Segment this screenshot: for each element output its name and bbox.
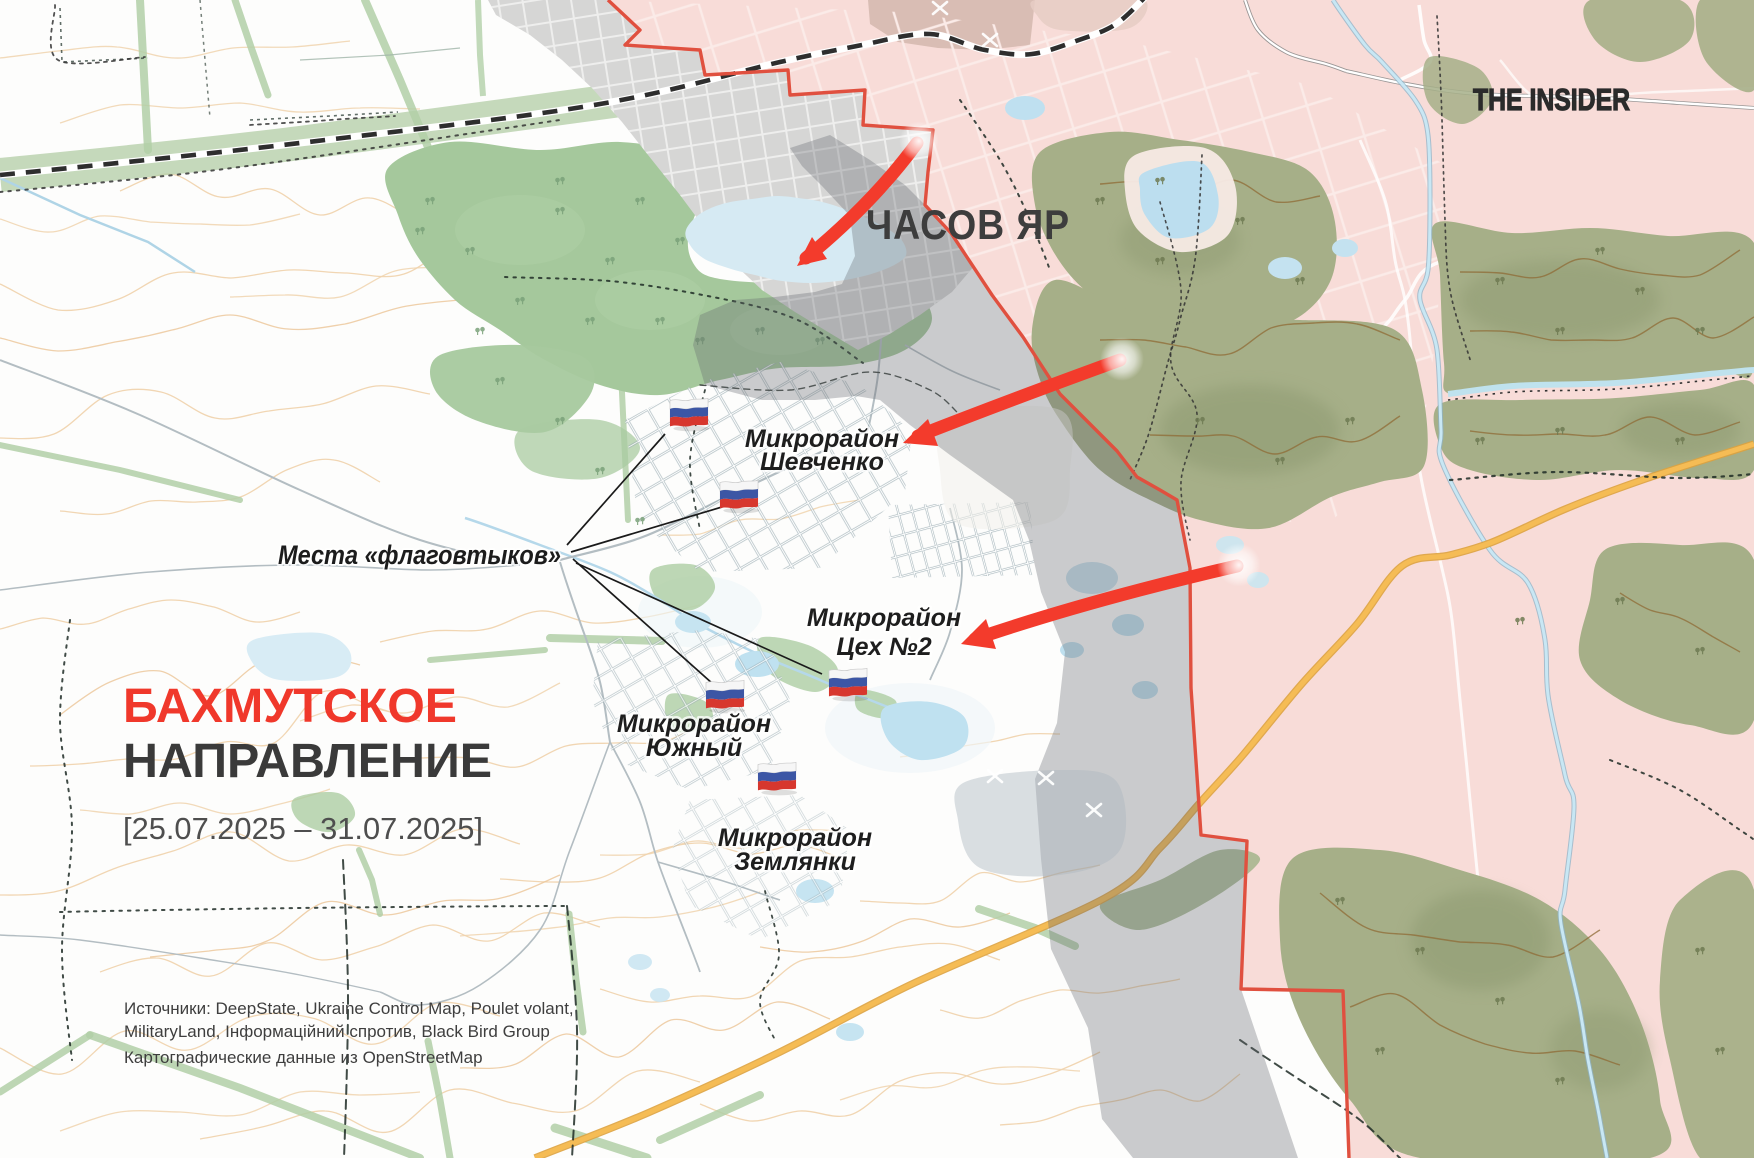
svg-text:ЧАСОВ ЯР: ЧАСОВ ЯР [866,201,1070,248]
svg-text:Микрорайон: Микрорайон [807,604,961,632]
svg-text:Цех №2: Цех №2 [836,633,931,661]
svg-text:Южный: Южный [646,734,742,762]
svg-text:[25.07.2025 – 31.07.2025]: [25.07.2025 – 31.07.2025] [123,811,483,846]
svg-text:Шевченко: Шевченко [760,448,884,476]
svg-text:БАХМУТСКОЕ: БАХМУТСКОЕ [123,680,457,733]
svg-text:MilitaryLand, Інформаційний сп: MilitaryLand, Інформаційний спротив, Bla… [124,1022,550,1041]
svg-text:НАПРАВЛЕНИЕ: НАПРАВЛЕНИЕ [123,735,492,788]
svg-text:THE INSIDER: THE INSIDER [1473,82,1630,117]
svg-text:Картографические данные из Ope: Картографические данные из OpenStreetMap [124,1048,483,1067]
svg-text:Места «флаговтыков»: Места «флаговтыков» [278,540,561,570]
svg-text:Землянки: Землянки [734,848,856,876]
svg-text:Источники: DeepState, Ukraine: Источники: DeepState, Ukraine Control Ma… [124,999,574,1018]
